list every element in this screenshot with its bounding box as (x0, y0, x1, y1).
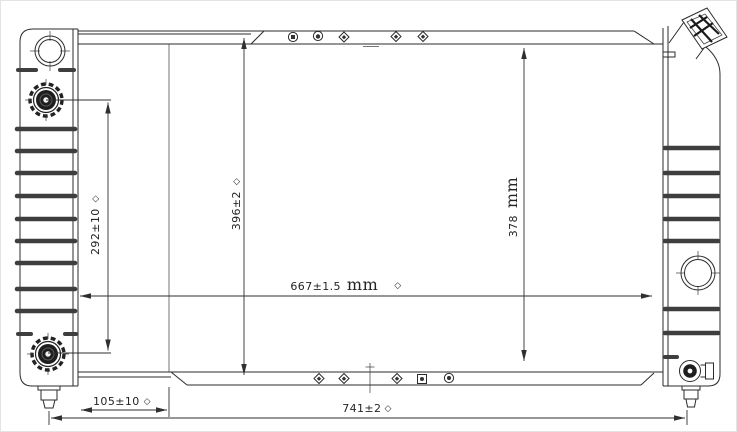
dimension-105: 105±10◇ (81, 387, 169, 417)
cooler-fitting (680, 361, 714, 382)
left-drain-plug (38, 386, 60, 408)
dim-378-label: 378mm (502, 177, 521, 238)
left-tank (17, 29, 78, 408)
core (78, 31, 663, 393)
dim-292-label: 292±10◇ (89, 195, 102, 255)
filler-neck-opening (30, 31, 70, 71)
inlet-pipe (669, 8, 727, 59)
dimension-378: 378mm (502, 48, 524, 361)
top-strip-fasteners (288, 31, 428, 42)
bottom-strip (78, 363, 663, 393)
top-strip (78, 31, 663, 47)
dim-741-label: 741±2◇ (342, 402, 392, 415)
lower-cap (27, 333, 69, 375)
right-drain-plug (682, 386, 700, 407)
dim-667-label: 667±1.5mm◇ (290, 275, 401, 294)
side-opening (676, 251, 720, 295)
dim-105-label: 105±10◇ (93, 395, 151, 408)
radiator-drawing-page: 292±10◇ 396±2◇ 378mm 667±1.5mm◇ 105±10◇ … (0, 0, 737, 432)
dimension-396: 396±2◇ (230, 38, 244, 375)
dimension-667: 667±1.5mm◇ (80, 275, 652, 296)
bottom-strip-fasteners (314, 373, 454, 383)
radiator-technical-drawing: 292±10◇ 396±2◇ 378mm 667±1.5mm◇ 105±10◇ … (1, 1, 737, 432)
right-tank (663, 8, 727, 407)
dim-396-label: 396±2◇ (230, 178, 243, 231)
right-tank-ribs (665, 148, 718, 357)
